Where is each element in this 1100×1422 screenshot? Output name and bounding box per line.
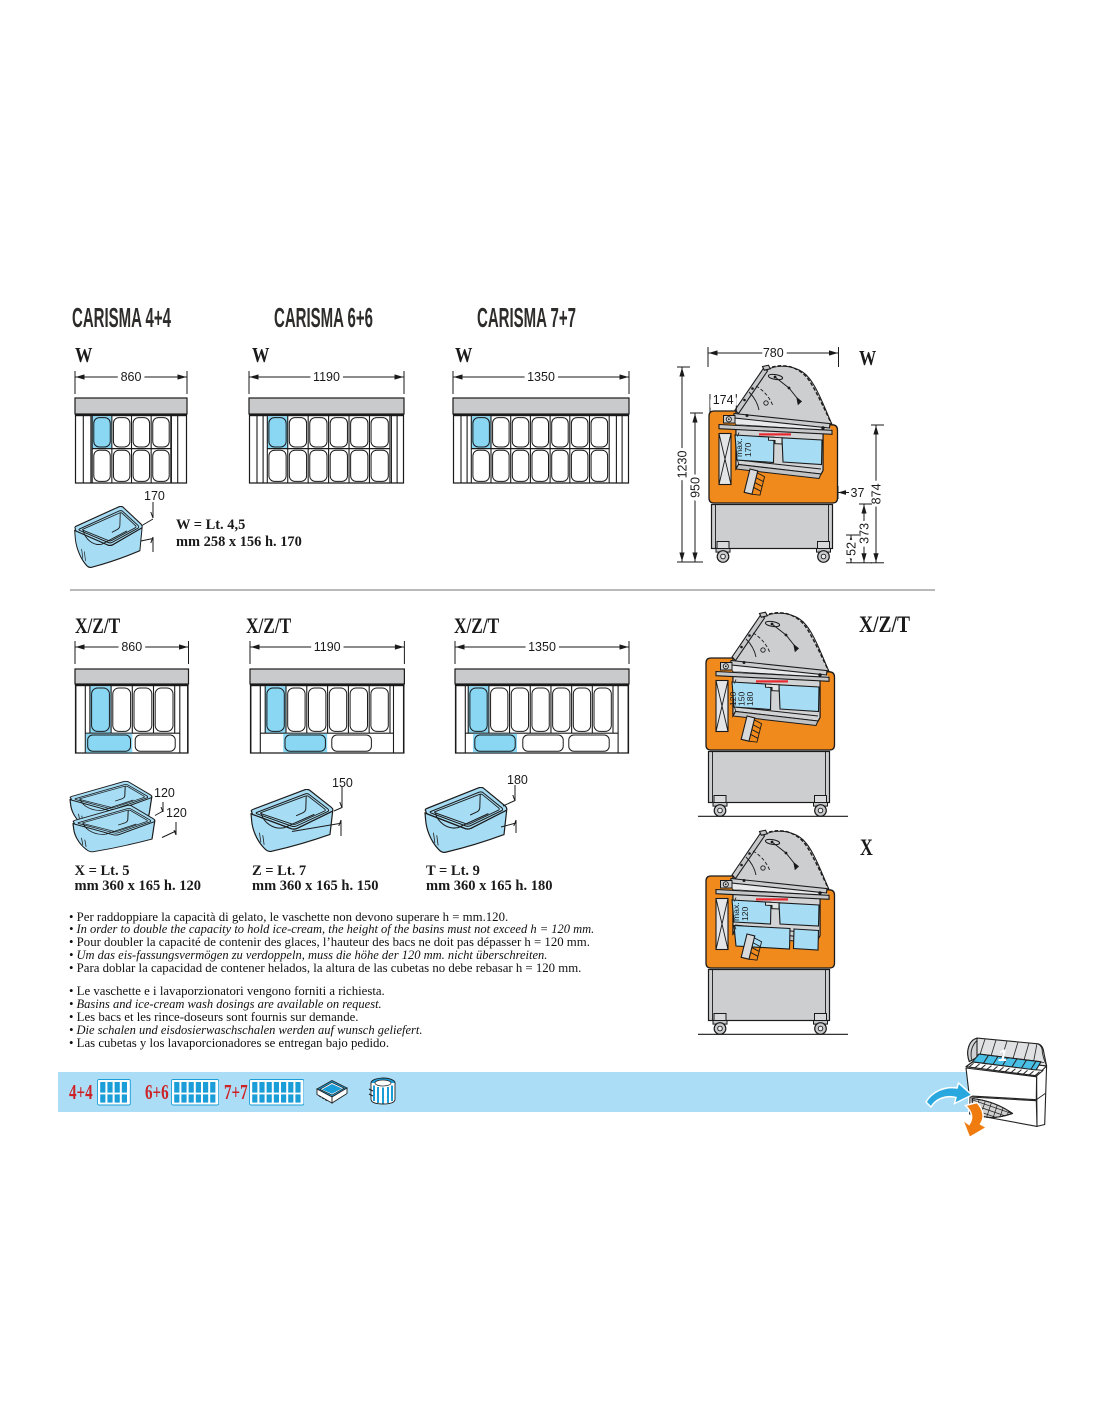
svg-text:1: 1 [998, 1046, 1007, 1065]
svg-text:37: 37 [851, 486, 865, 500]
svg-text:1190: 1190 [313, 370, 340, 384]
svg-text:950: 950 [688, 477, 702, 498]
svg-text:860: 860 [121, 370, 142, 384]
svg-text:1350: 1350 [528, 640, 556, 654]
svg-text:1350: 1350 [527, 370, 555, 384]
svg-text:174: 174 [712, 393, 733, 407]
svg-text:120150180: 120150180 [728, 691, 755, 706]
svg-text:52: 52 [844, 542, 858, 556]
svg-text:1190: 1190 [314, 640, 341, 654]
svg-text:860: 860 [121, 640, 142, 654]
svg-text:780: 780 [763, 346, 784, 360]
